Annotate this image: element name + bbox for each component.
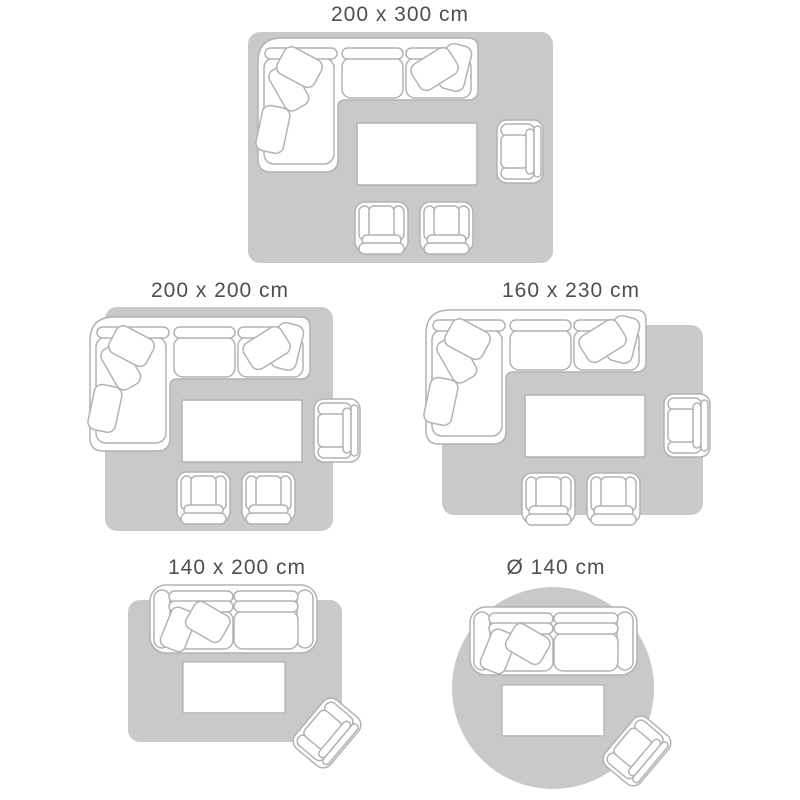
two-seater-sofa-icon: [150, 585, 317, 654]
coffee-table-icon: [182, 400, 302, 462]
size-label-round-140: Ø 140 cm: [506, 557, 605, 579]
small-armchair-icon: [242, 472, 295, 524]
small-armchair-icon: [587, 473, 640, 525]
armchair-icon: [314, 399, 360, 462]
size-label-200x200: 200 x 200 cm: [151, 280, 289, 302]
coffee-table-icon: [357, 123, 477, 185]
armchair-icon: [497, 120, 543, 183]
layout-160x230: [422, 310, 710, 525]
small-armchair-icon: [355, 202, 408, 254]
layout-200x200: [86, 307, 360, 531]
armchair-icon: [664, 394, 710, 457]
small-armchair-icon: [177, 472, 230, 524]
small-armchair-icon: [522, 473, 575, 525]
small-armchair-icon: [420, 202, 473, 254]
layout-140x200: [128, 585, 365, 772]
two-seater-sofa-icon: [470, 607, 637, 676]
layout-round-140: [452, 587, 675, 790]
rug-size-guide: 200 x 300 cm 200 x 200 cm 160 x 230 cm 1…: [0, 0, 800, 800]
coffee-table-icon: [525, 395, 645, 457]
coffee-table-icon: [502, 685, 604, 736]
size-label-200x300: 200 x 300 cm: [331, 4, 469, 26]
rug-layouts-graphic: [0, 0, 800, 800]
size-label-140x200: 140 x 200 cm: [168, 557, 306, 579]
layout-200x300: [248, 32, 553, 263]
coffee-table-icon: [183, 662, 285, 713]
size-label-160x230: 160 x 230 cm: [502, 280, 640, 302]
